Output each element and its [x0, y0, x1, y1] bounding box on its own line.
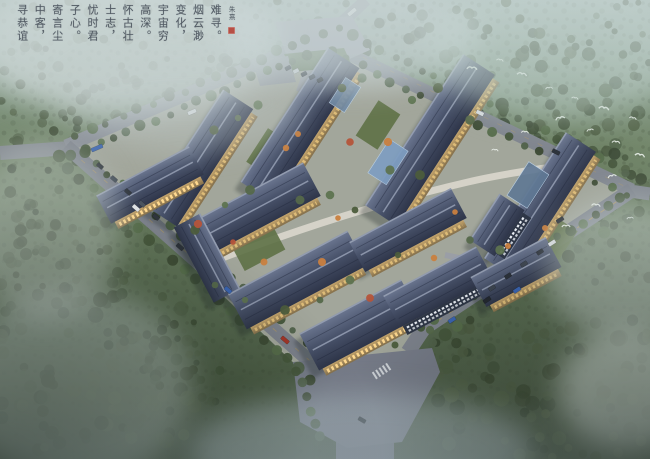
campus-tree — [253, 100, 262, 109]
campus-tree — [392, 342, 399, 349]
autumn-tree — [261, 259, 268, 266]
calligraphy-column: 高深。 — [137, 4, 153, 96]
forest-tree — [67, 106, 76, 115]
forest-tree — [0, 66, 9, 76]
forest-tree — [593, 13, 600, 20]
forest-tree — [158, 292, 167, 301]
forest-tree — [17, 399, 29, 411]
forest-tree — [60, 258, 72, 270]
forest-tree — [534, 28, 545, 39]
forest-tree — [133, 332, 142, 341]
forest-tree — [606, 403, 615, 412]
autumn-tree — [295, 131, 301, 137]
street-tree — [553, 233, 561, 241]
forest-tree — [182, 335, 194, 347]
forest-tree — [24, 380, 36, 392]
forest-tree — [36, 390, 51, 405]
street-tree — [121, 127, 130, 136]
street-tree — [181, 103, 188, 110]
street-tree — [541, 125, 551, 135]
street-tree — [521, 142, 528, 149]
campus-tree — [357, 73, 366, 82]
forest-tree — [143, 363, 153, 373]
forest-tree — [51, 297, 63, 309]
forest-tree — [582, 47, 596, 61]
street-tree — [288, 41, 297, 50]
campus-tree — [346, 276, 355, 285]
campus-tree — [415, 170, 425, 180]
forest-tree — [133, 352, 144, 363]
forest-tree — [15, 224, 27, 236]
forest-tree — [26, 219, 37, 230]
street-tree — [319, 29, 328, 38]
forest-tree — [609, 432, 619, 442]
forest-tree — [158, 336, 172, 350]
street-tree — [487, 100, 494, 107]
campus-tree — [395, 252, 401, 258]
forest-tree — [387, 12, 396, 21]
forest-tree — [171, 371, 179, 379]
forest-tree — [630, 63, 638, 71]
calligraphy-signature: 朱熹 — [226, 6, 236, 96]
forest-tree — [185, 351, 193, 359]
forest-tree — [112, 267, 123, 278]
forest-tree — [37, 118, 47, 128]
forest-tree — [468, 383, 477, 392]
campus-tree — [280, 305, 290, 315]
forest-tree — [3, 252, 15, 264]
forest-tree — [62, 116, 68, 122]
street-tree — [167, 112, 174, 119]
street-tree — [90, 184, 99, 193]
forest-tree — [552, 431, 566, 445]
street-tree — [385, 77, 395, 87]
street-tree — [562, 250, 575, 263]
street-tree — [623, 214, 633, 224]
forest-tree — [620, 251, 631, 262]
forest-tree — [576, 98, 590, 112]
forest-tree — [636, 352, 647, 363]
autumn-tree — [230, 239, 236, 245]
forest-tree — [481, 412, 494, 425]
forest-tree — [150, 335, 159, 344]
forest-tree — [442, 437, 456, 451]
forest-tree — [122, 271, 129, 278]
forest-tree — [32, 289, 44, 301]
street-tree — [131, 103, 141, 113]
forest-tree — [482, 24, 492, 34]
forest-tree — [407, 4, 416, 13]
calligraphy-column: 子心。 — [66, 4, 82, 96]
forest-tree — [452, 355, 460, 363]
autumn-tree — [283, 145, 289, 151]
forest-tree — [634, 73, 643, 82]
forest-tree — [170, 320, 179, 329]
forest-tree — [521, 97, 529, 105]
street-tree — [291, 367, 301, 377]
street-tree — [154, 244, 164, 254]
street-tree — [151, 117, 160, 126]
forest-tree — [483, 324, 493, 334]
campus-tree — [212, 282, 219, 289]
forest-tree — [58, 307, 70, 319]
forest-tree — [180, 391, 195, 406]
forest-tree — [598, 262, 606, 270]
forest-tree — [454, 416, 467, 429]
forest-tree — [15, 323, 27, 335]
forest-tree — [108, 391, 122, 405]
forest-tree — [97, 248, 104, 255]
autumn-tree — [542, 225, 548, 231]
forest-tree — [39, 283, 46, 290]
calligraphy-column: 中客， — [31, 4, 47, 96]
forest-tree — [545, 99, 556, 110]
forest-tree — [0, 306, 11, 317]
forest-tree — [558, 84, 568, 94]
street-tree — [289, 58, 296, 65]
street-tree — [102, 121, 109, 128]
forest-tree — [124, 424, 133, 433]
street-tree — [65, 150, 76, 161]
forest-tree — [44, 364, 54, 374]
campus-tree — [242, 297, 248, 303]
street-tree — [143, 234, 155, 246]
forest-tree — [113, 403, 125, 415]
street-tree — [373, 70, 382, 79]
forest-tree — [189, 365, 198, 374]
forest-tree — [64, 360, 76, 372]
street-tree — [289, 327, 295, 333]
forest-tree — [20, 248, 32, 260]
forest-tree — [604, 21, 612, 29]
street-tree — [417, 92, 424, 99]
autumn-tree — [194, 220, 202, 228]
forest-tree — [88, 307, 104, 323]
street-tree — [608, 159, 617, 168]
forest-tree — [157, 392, 167, 402]
forest-tree — [17, 210, 25, 218]
calligraphy-column: 烟云渺 — [190, 4, 206, 96]
forest-tree — [531, 84, 544, 97]
calligraphy-column: 寻恭谊 — [14, 4, 30, 96]
forest-tree — [81, 434, 90, 443]
street-tree — [302, 392, 311, 401]
seal-stamp-icon — [228, 27, 235, 34]
forest-tree — [104, 340, 114, 350]
forest-tree — [483, 343, 496, 356]
campus-tree — [338, 84, 347, 93]
street-tree — [592, 180, 598, 186]
street-tree — [430, 72, 437, 79]
forest-tree — [474, 395, 486, 407]
campus-tree — [465, 115, 475, 125]
forest-tree — [40, 443, 49, 452]
street-tree — [514, 115, 522, 123]
forest-tree — [7, 164, 16, 173]
forest-tree — [632, 270, 639, 277]
street-tree — [615, 193, 625, 203]
forest-tree — [456, 379, 468, 391]
forest-tree — [618, 368, 631, 381]
forest-tree — [630, 41, 641, 52]
forest-tree — [9, 138, 15, 144]
street-tree — [598, 226, 610, 238]
street-tree — [603, 201, 613, 211]
forest-tree — [174, 301, 189, 316]
forest-tree — [77, 296, 87, 306]
forest-tree — [68, 224, 77, 233]
street-tree — [87, 123, 98, 134]
forest-tree — [49, 126, 59, 136]
forest-tree — [590, 317, 602, 329]
forest-tree — [32, 209, 39, 216]
forest-tree — [37, 405, 49, 417]
street-tree — [610, 221, 618, 229]
street-tree — [150, 101, 157, 108]
autumn-tree — [505, 243, 511, 249]
campus-tree — [385, 165, 394, 174]
street-tree — [439, 328, 452, 341]
campus-tree — [352, 207, 359, 214]
forest-tree — [567, 35, 575, 43]
autumn-tree — [384, 138, 392, 146]
campus-tree — [495, 245, 504, 254]
street-tree — [110, 134, 117, 141]
forest-tree — [522, 331, 535, 344]
forest-tree — [564, 321, 579, 336]
street-tree — [120, 113, 127, 120]
campus-tree — [222, 202, 228, 208]
autumn-tree — [346, 138, 354, 146]
forest-tree — [106, 358, 120, 372]
street-tree — [634, 206, 645, 217]
forest-tree — [535, 432, 545, 442]
street-tree — [535, 147, 544, 156]
forest-tree — [562, 418, 575, 431]
architectural-rendering: 朱熹 难寻。 烟云渺 变化， 宇宙穷 高深。 怀古壮 士志， 忧时君 子心。 寄… — [0, 0, 650, 459]
forest-tree — [171, 354, 183, 366]
street-tree — [359, 60, 368, 69]
forest-tree — [431, 394, 445, 408]
forest-tree — [562, 57, 571, 66]
street-tree — [565, 225, 576, 236]
forest-tree — [610, 330, 626, 346]
forest-tree — [59, 282, 70, 293]
forest-tree — [627, 394, 638, 405]
forest-tree — [157, 325, 167, 335]
street-tree — [608, 183, 617, 192]
forest-tree — [50, 219, 61, 230]
forest-tree — [550, 43, 557, 50]
forest-tree — [143, 330, 152, 339]
street-tree — [452, 321, 463, 332]
forest-tree — [88, 380, 99, 391]
forest-tree — [374, 18, 385, 29]
forest-tree — [14, 283, 22, 291]
forest-tree — [54, 185, 63, 194]
street-tree — [300, 34, 310, 44]
forest-tree — [487, 361, 499, 373]
street-tree — [302, 50, 313, 61]
forest-tree — [13, 271, 20, 278]
street-tree — [272, 345, 282, 355]
forest-tree — [592, 61, 600, 69]
forest-tree — [201, 349, 207, 355]
street-tree — [103, 171, 110, 178]
forest-tree — [639, 31, 646, 38]
forest-tree — [467, 412, 477, 422]
forest-tree — [564, 444, 572, 452]
forest-tree — [191, 319, 197, 325]
forest-tree — [622, 154, 629, 161]
forest-tree — [628, 119, 640, 131]
forest-tree — [215, 366, 224, 375]
forest-tree — [573, 343, 584, 354]
forest-tree — [602, 98, 612, 108]
forest-tree — [539, 328, 549, 338]
forest-tree — [501, 437, 509, 445]
campus-tree — [245, 185, 255, 195]
street-tree — [240, 58, 250, 68]
street-tree — [487, 127, 497, 137]
forest-tree — [586, 39, 593, 46]
street-tree — [310, 419, 320, 429]
forest-tree — [20, 369, 30, 379]
forest-tree — [73, 239, 80, 246]
forest-tree — [444, 387, 459, 402]
street-tree — [621, 169, 629, 177]
forest-tree — [565, 346, 573, 354]
forest-tree — [619, 50, 628, 59]
forest-tree — [458, 347, 469, 358]
forest-tree — [207, 397, 216, 406]
street-tree — [246, 71, 256, 81]
forest-tree — [485, 374, 495, 384]
street-tree — [393, 54, 400, 61]
forest-tree — [16, 309, 26, 319]
calligraphy-inscription: 朱熹 难寻。 烟云渺 变化， 宇宙穷 高深。 怀古壮 士志， 忧时君 子心。 寄… — [12, 4, 238, 96]
forest-tree — [4, 186, 16, 198]
forest-tree — [150, 350, 157, 357]
calligraphy-column: 宇宙穷 — [154, 4, 170, 96]
forest-tree — [197, 376, 205, 384]
forest-tree — [573, 409, 581, 417]
forest-tree — [593, 395, 606, 408]
forest-tree — [46, 231, 56, 241]
forest-tree — [634, 254, 640, 260]
forest-tree — [73, 124, 81, 132]
forest-tree — [604, 270, 611, 277]
forest-tree — [150, 375, 161, 386]
forest-tree — [16, 236, 27, 247]
forest-tree — [452, 5, 461, 14]
forest-tree — [628, 277, 634, 283]
forest-tree — [558, 118, 570, 130]
street-tree — [134, 120, 145, 131]
signature-text: 朱熹 — [227, 6, 235, 21]
forest-tree — [103, 328, 112, 337]
forest-tree — [638, 364, 646, 372]
forest-tree — [178, 429, 189, 440]
street-tree — [271, 45, 282, 56]
forest-tree — [532, 48, 540, 56]
street-tree — [336, 25, 343, 32]
forest-tree — [481, 33, 488, 40]
forest-tree — [416, 9, 427, 20]
forest-tree — [10, 109, 17, 116]
street-tree — [363, 39, 372, 48]
forest-tree — [602, 118, 615, 131]
street-tree — [419, 68, 426, 75]
forest-tree — [556, 326, 564, 334]
forest-tree — [613, 448, 623, 458]
forest-tree — [467, 18, 479, 30]
forest-tree — [137, 402, 146, 411]
forest-tree — [541, 409, 550, 418]
street-tree — [592, 211, 600, 219]
forest-tree — [463, 8, 474, 19]
campus-tree — [209, 125, 218, 134]
forest-tree — [609, 148, 621, 160]
forest-tree — [516, 14, 525, 23]
forest-tree — [532, 343, 543, 354]
forest-tree — [564, 384, 576, 396]
street-tree — [404, 58, 413, 67]
autumn-tree — [318, 258, 326, 266]
forest-tree — [579, 450, 588, 459]
forest-tree — [116, 324, 129, 337]
forest-tree — [612, 28, 618, 34]
forest-tree — [623, 422, 637, 436]
forest-tree — [543, 391, 553, 401]
forest-tree — [607, 238, 617, 248]
street-tree — [578, 219, 588, 229]
forest-tree — [542, 364, 558, 380]
calligraphy-column: 士志， — [102, 4, 118, 96]
campus-tree — [317, 297, 324, 304]
street-tree — [347, 29, 359, 41]
forest-tree — [116, 288, 127, 299]
campus-tree — [326, 191, 335, 200]
street-tree — [574, 245, 583, 254]
forest-tree — [609, 415, 618, 424]
street-tree — [505, 132, 514, 141]
calligraphy-column: 难寻。 — [207, 4, 223, 96]
autumn-tree — [335, 215, 341, 221]
forest-tree — [34, 245, 41, 252]
street-tree — [402, 86, 410, 94]
forest-tree — [451, 338, 461, 348]
campus-tree — [235, 115, 241, 121]
street-tree — [167, 255, 178, 266]
forest-tree — [439, 50, 453, 64]
forest-tree — [14, 260, 22, 268]
forest-tree — [23, 204, 30, 211]
forest-tree — [591, 278, 599, 286]
street-tree — [374, 45, 384, 55]
calligraphy-column: 变化， — [172, 4, 188, 96]
forest-tree — [535, 60, 548, 73]
forest-tree — [636, 435, 647, 446]
street-tree — [635, 173, 647, 185]
forest-tree — [107, 277, 118, 288]
forest-tree — [132, 417, 144, 429]
street-tree — [71, 132, 78, 139]
forest-tree — [94, 416, 108, 430]
forest-tree — [526, 412, 536, 422]
street-tree — [191, 96, 201, 106]
forest-tree — [599, 84, 613, 98]
